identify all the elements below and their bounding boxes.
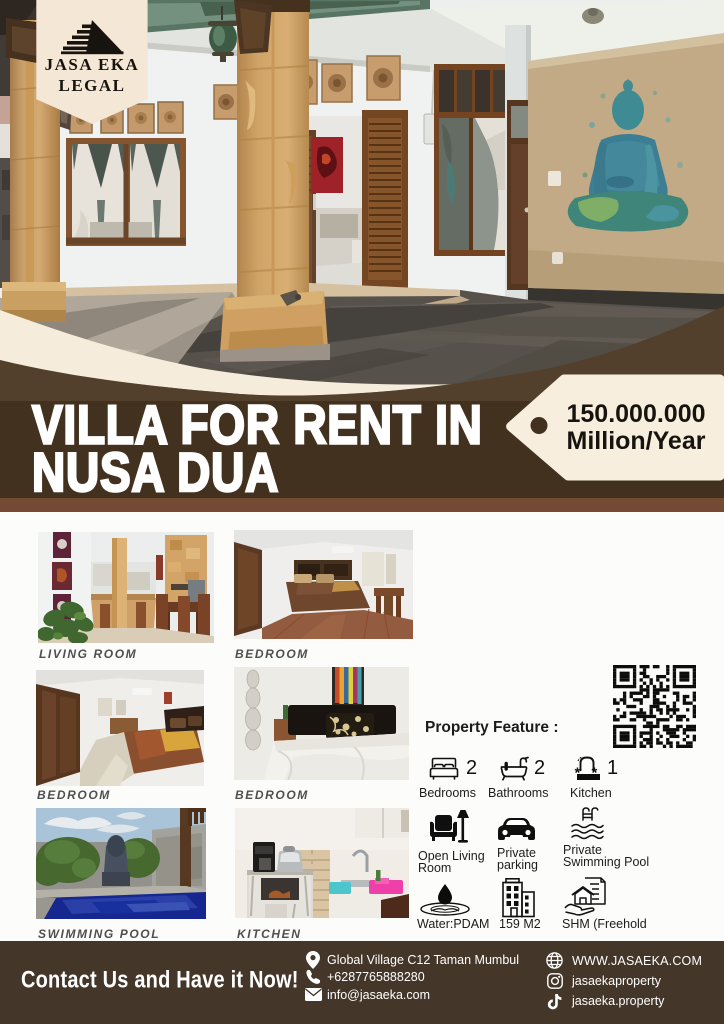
svg-text:*: * <box>575 765 581 782</box>
svg-text:LEGAL: LEGAL <box>58 76 125 95</box>
svg-text:150.000.000: 150.000.000 <box>566 400 705 428</box>
svg-text:JASA EKA: JASA EKA <box>45 55 140 74</box>
svg-text:Million/Year: Million/Year <box>567 427 706 455</box>
svg-text:*: * <box>592 765 598 782</box>
